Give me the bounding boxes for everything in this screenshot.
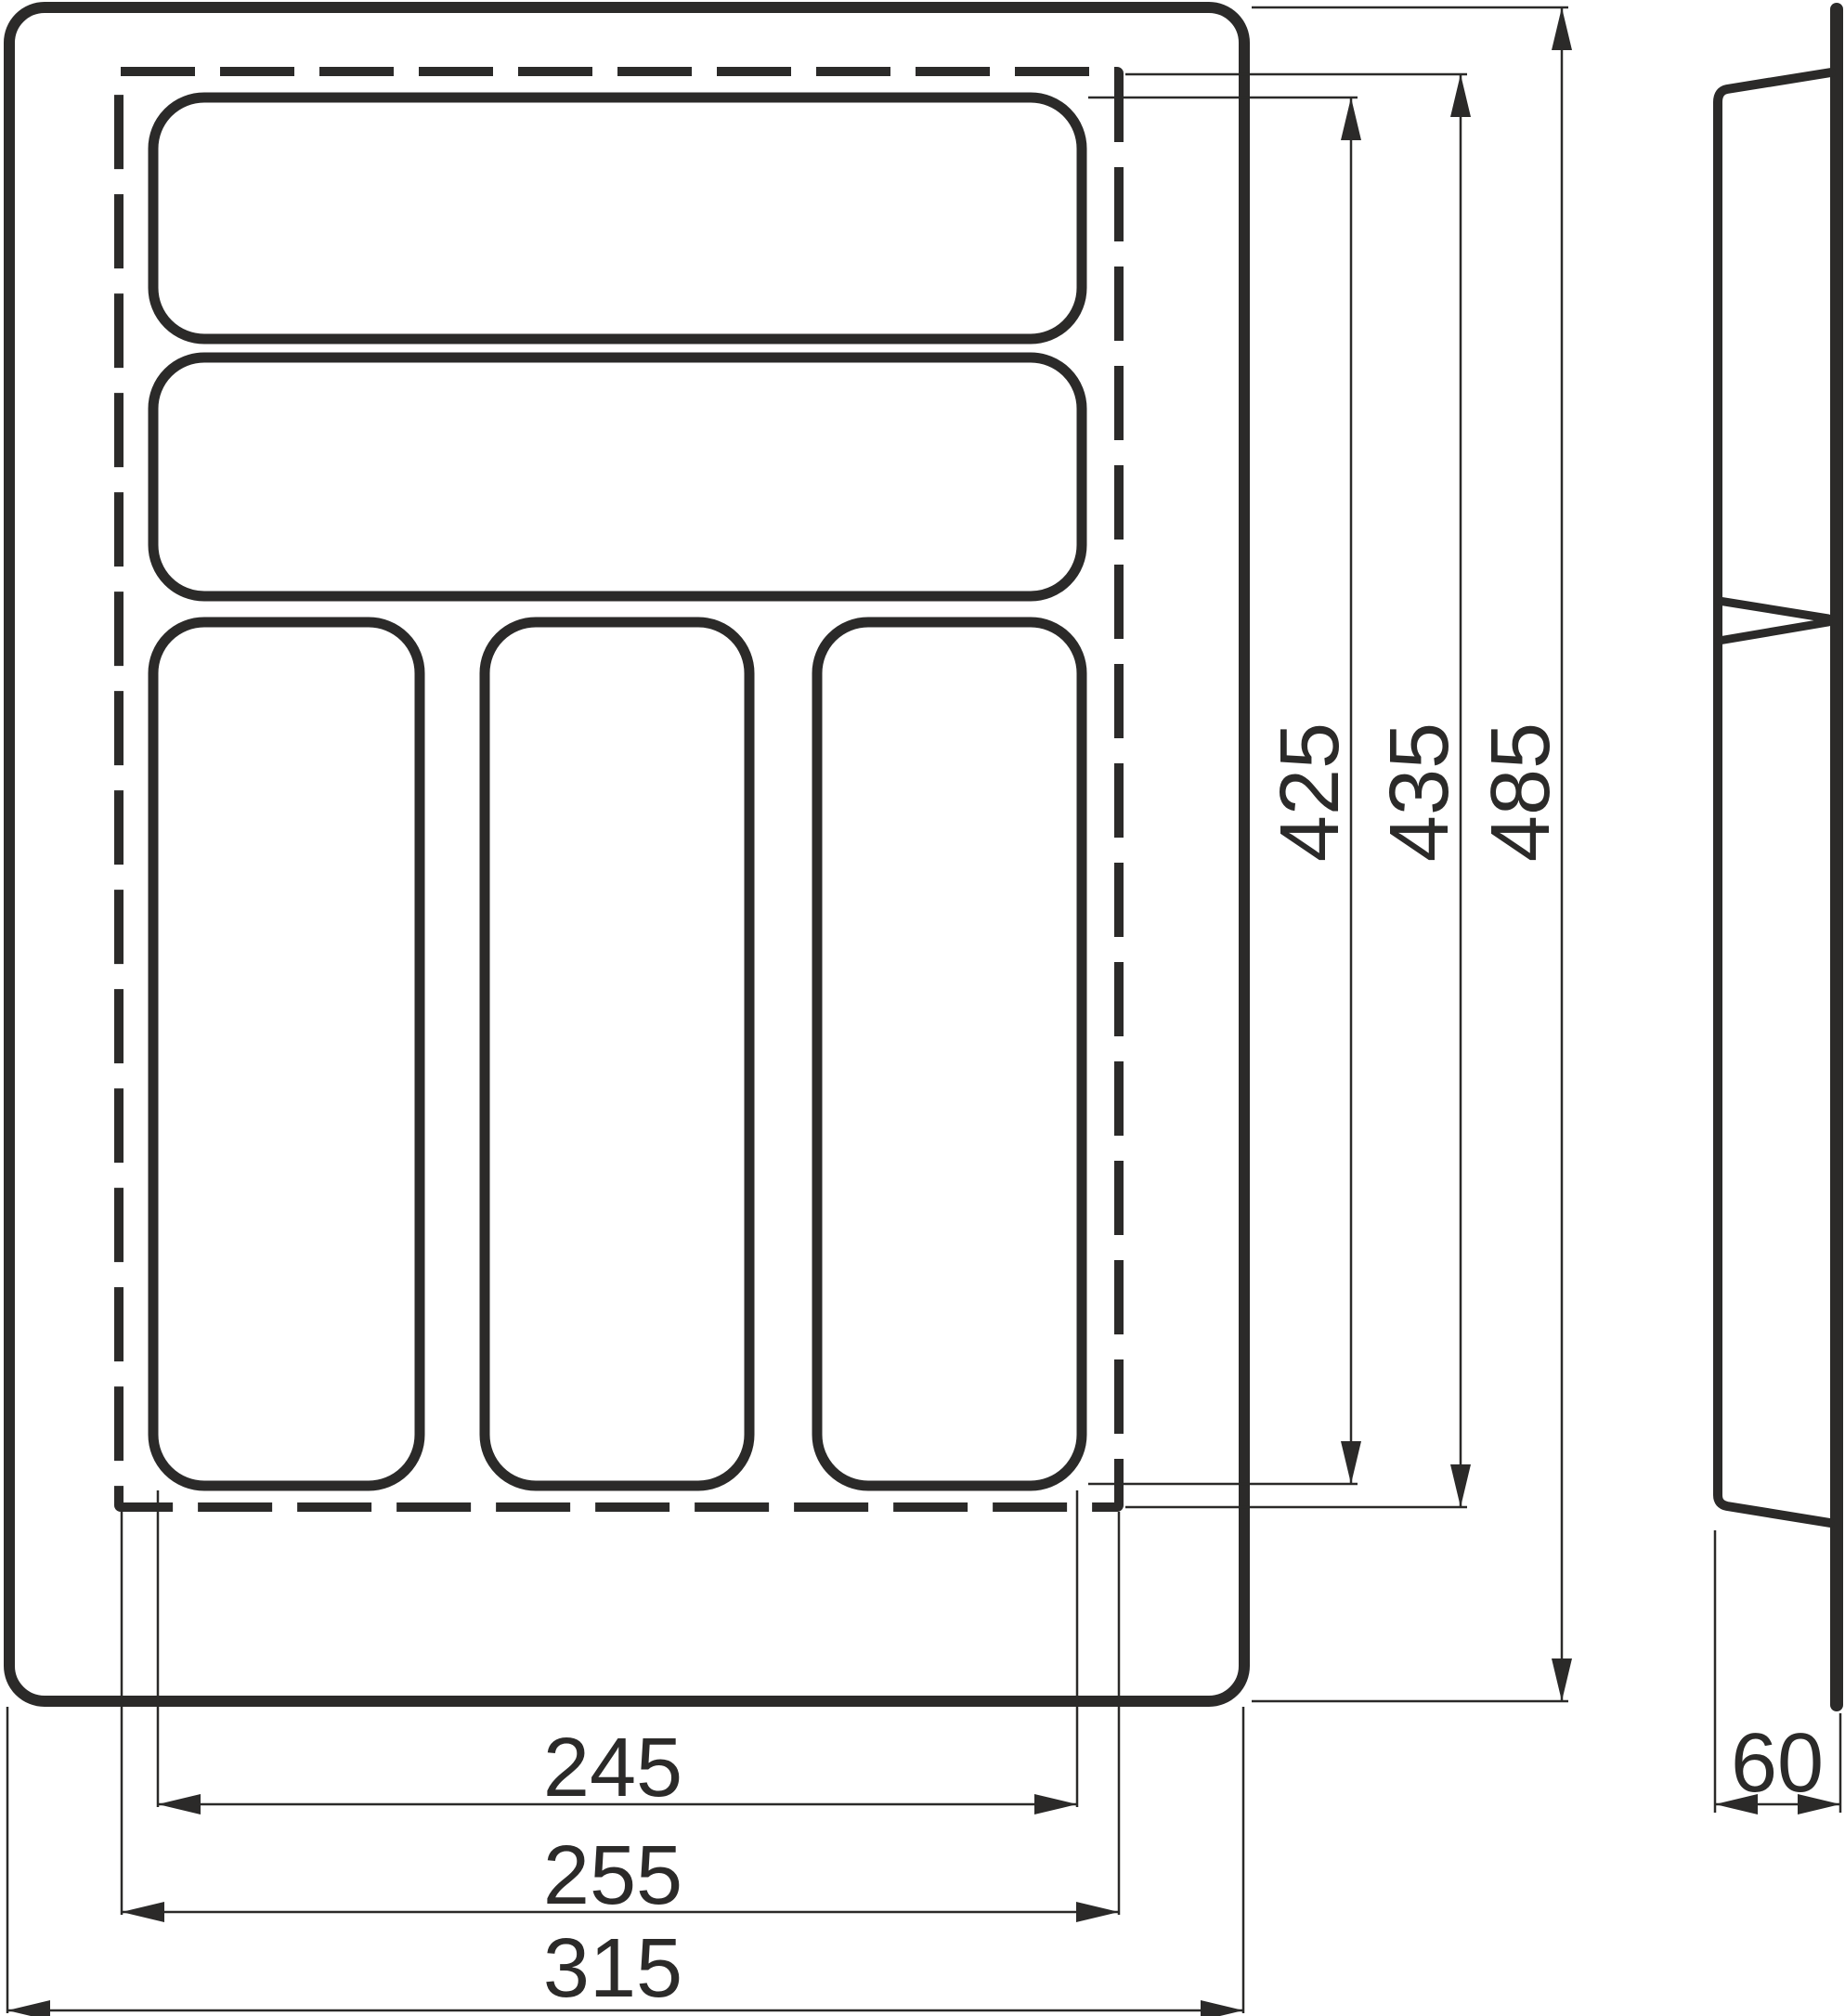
dim-315-label: 315 — [543, 1922, 682, 2015]
dimension-245: 245 — [158, 1490, 1077, 1814]
compartment-top-2 — [153, 358, 1082, 596]
dim-60-label: 60 — [1731, 1717, 1824, 1810]
front-view — [9, 7, 1244, 1701]
side-front-profile — [1718, 72, 1831, 1523]
dimension-60: 60 — [1715, 1530, 1840, 1813]
cutting-line — [119, 72, 1119, 1507]
compartment-column-3 — [817, 622, 1082, 1486]
compartment-top-1 — [153, 98, 1082, 339]
dim-485-label: 485 — [1475, 722, 1567, 862]
tray-outer-outline — [9, 7, 1244, 1701]
dimension-255: 255 — [122, 1512, 1119, 1922]
dim-425-label: 425 — [1264, 722, 1357, 862]
side-view — [1718, 9, 1837, 1705]
compartment-column-2 — [485, 622, 749, 1486]
dim-255-label: 255 — [543, 1829, 682, 1922]
dimension-425: 425 — [1088, 98, 1358, 1484]
side-step-notch — [1719, 601, 1828, 641]
cutlery-tray-dimension-drawing: 425 435 485 245 255 315 60 — [0, 0, 1845, 2016]
compartment-column-1 — [153, 622, 420, 1486]
drawing-canvas: 425 435 485 245 255 315 60 — [0, 0, 1845, 2016]
dim-245-label: 245 — [543, 1722, 682, 1814]
dim-435-label: 435 — [1373, 722, 1466, 862]
